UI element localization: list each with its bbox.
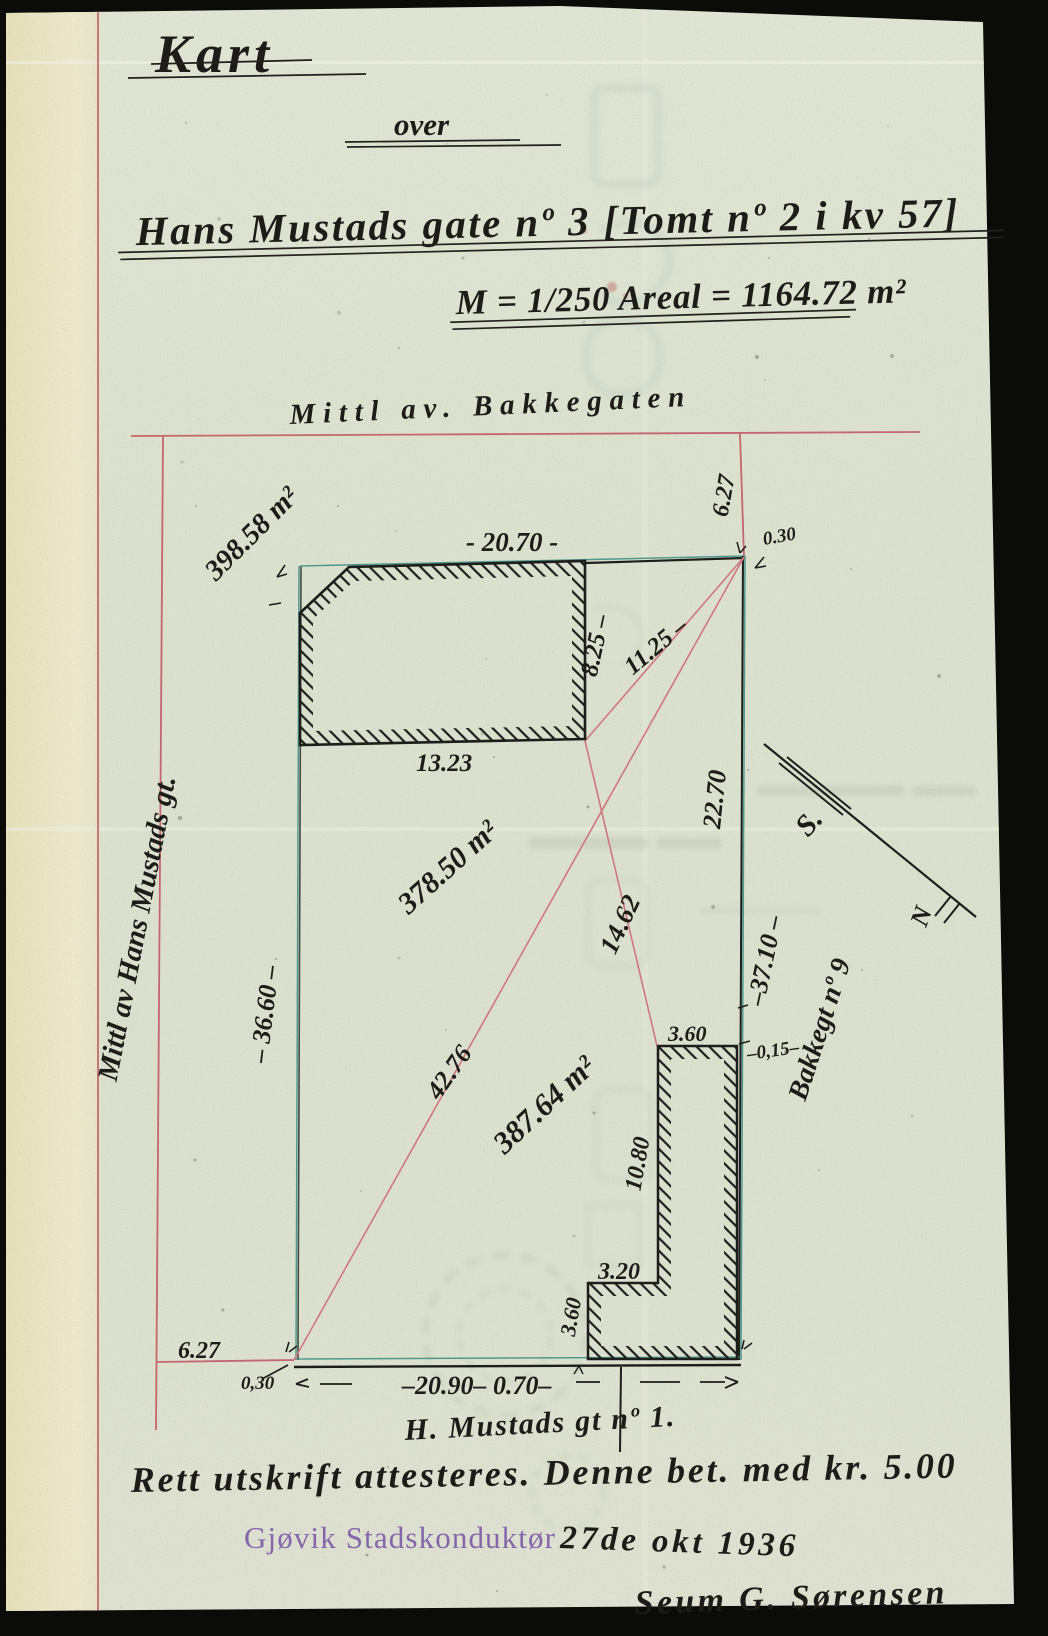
svg-text:3.60: 3.60 [667,1021,707,1046]
svg-text:over: over [394,107,450,142]
svg-text:–20.90– 0.70–: –20.90– 0.70– [401,1371,552,1400]
svg-text:3.20: 3.20 [597,1259,640,1285]
svg-text:13.23: 13.23 [416,750,472,777]
svg-text:22.70: 22.70 [697,769,732,831]
svg-text:6.27: 6.27 [178,1338,221,1364]
svg-text:Gjøvik Stadskonduktør: Gjøvik Stadskonduktør [244,1520,556,1555]
svg-text:0,30: 0,30 [241,1373,275,1394]
svg-text:- 20.70 -: - 20.70 - [466,527,558,557]
